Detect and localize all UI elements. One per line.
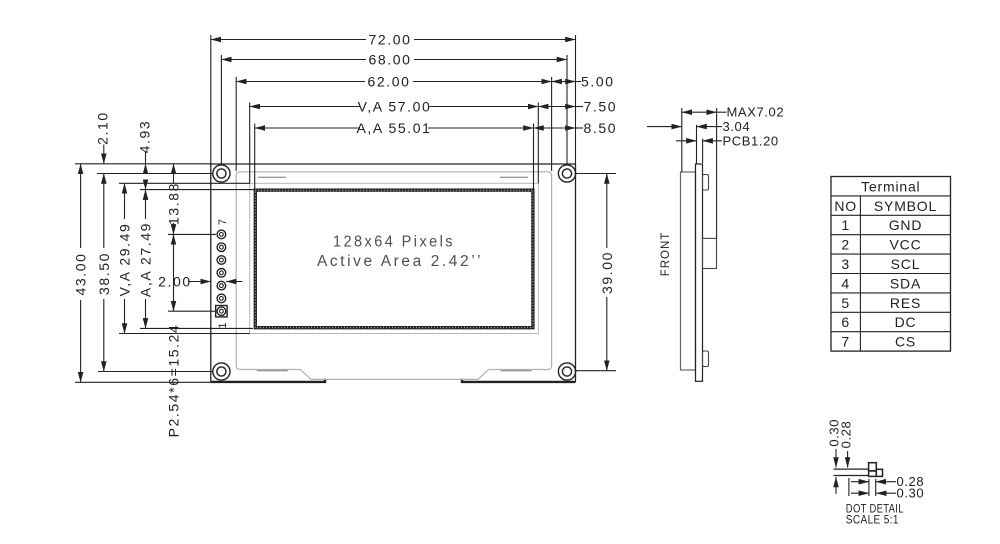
svg-text:7: 7 xyxy=(217,219,229,225)
svg-text:P2.54*6=15.24: P2.54*6=15.24 xyxy=(166,324,182,438)
svg-text:6: 6 xyxy=(841,314,850,330)
svg-text:72.00: 72.00 xyxy=(368,32,411,48)
svg-text:V,A 29.49: V,A 29.49 xyxy=(117,223,133,297)
svg-text:DC: DC xyxy=(895,314,917,330)
svg-text:8.50: 8.50 xyxy=(584,120,618,136)
svg-text:62.00: 62.00 xyxy=(367,74,410,90)
svg-text:5.00: 5.00 xyxy=(581,74,615,90)
svg-text:3: 3 xyxy=(841,256,850,272)
svg-text:2: 2 xyxy=(841,237,850,253)
svg-text:2.00: 2.00 xyxy=(158,274,192,290)
svg-text:39.00: 39.00 xyxy=(599,251,615,294)
svg-text:13.88: 13.88 xyxy=(166,182,182,225)
svg-text:RES: RES xyxy=(890,295,921,311)
svg-text:SYMBOL: SYMBOL xyxy=(874,198,937,214)
svg-text:1: 1 xyxy=(217,322,229,328)
svg-text:A,A 55.01: A,A 55.01 xyxy=(356,120,431,136)
svg-text:SDA: SDA xyxy=(890,275,921,291)
svg-text:2.10: 2.10 xyxy=(95,111,111,145)
svg-text:5: 5 xyxy=(841,295,850,311)
svg-text:GND: GND xyxy=(889,217,923,233)
svg-text:MAX7.02: MAX7.02 xyxy=(727,105,785,120)
svg-text:7: 7 xyxy=(841,334,850,350)
svg-text:FRONT: FRONT xyxy=(660,232,672,277)
svg-text:VCC: VCC xyxy=(890,237,922,253)
svg-text:A,A 27.49: A,A 27.49 xyxy=(138,222,154,297)
svg-text:38.50: 38.50 xyxy=(96,252,112,295)
svg-text:Active Area 2.42’’: Active Area 2.42’’ xyxy=(317,253,483,270)
svg-text:NO: NO xyxy=(834,198,857,214)
svg-text:PCB1.20: PCB1.20 xyxy=(723,133,779,148)
svg-text:7.50: 7.50 xyxy=(584,99,618,115)
svg-text:1: 1 xyxy=(841,217,850,233)
svg-text:128x64 Pixels: 128x64 Pixels xyxy=(333,234,455,251)
svg-text:V,A 57.00: V,A 57.00 xyxy=(358,99,432,115)
svg-text:4: 4 xyxy=(841,275,850,291)
svg-text:0.30: 0.30 xyxy=(897,486,925,501)
svg-text:43.00: 43.00 xyxy=(73,252,89,295)
svg-text:68.00: 68.00 xyxy=(368,52,411,68)
svg-text:CS: CS xyxy=(895,334,916,350)
svg-text:SCALE 5:1: SCALE 5:1 xyxy=(846,515,899,527)
svg-text:0.28: 0.28 xyxy=(838,421,853,449)
svg-text:3.04: 3.04 xyxy=(723,119,751,134)
svg-text:Terminal: Terminal xyxy=(861,178,920,194)
svg-text:4.93: 4.93 xyxy=(137,120,153,154)
svg-text:SCL: SCL xyxy=(891,256,921,272)
